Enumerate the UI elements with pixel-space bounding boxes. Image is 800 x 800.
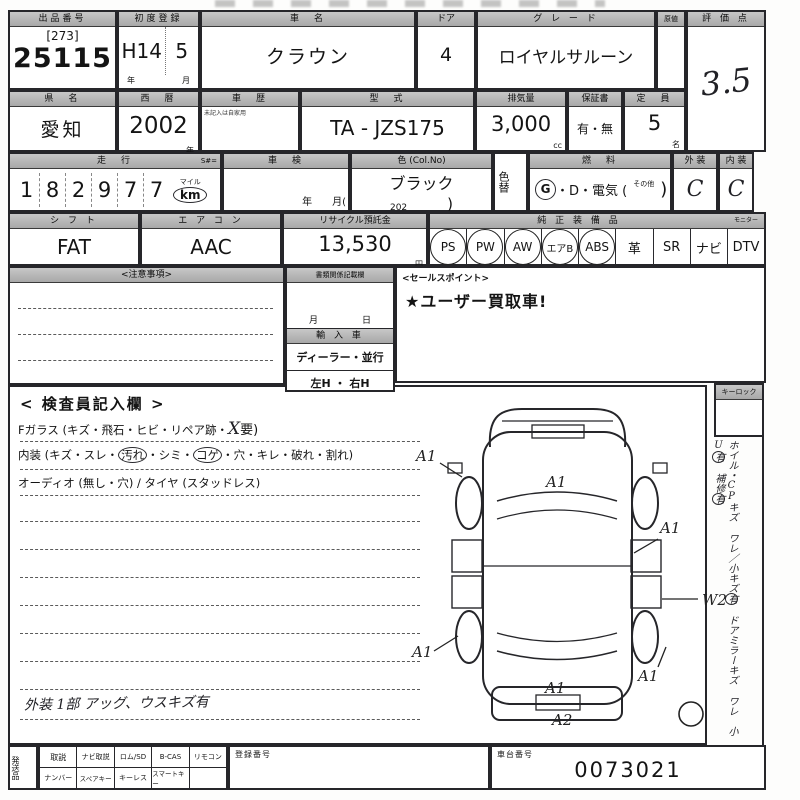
- interior-grade: C: [720, 169, 752, 209]
- ship-navi-manual: ナビ取説: [77, 747, 114, 767]
- keylock-header: キーロック: [716, 385, 762, 400]
- mileage-digit: 8: [40, 173, 66, 207]
- shift-cell: シ フ ト FAT: [8, 212, 140, 266]
- warranty-cell: 保証書 有・無: [567, 90, 623, 152]
- score-value: 3.5: [682, 23, 769, 140]
- car-name-header: 車 名: [202, 12, 414, 27]
- docs-header: 書類関係記載欄: [287, 268, 393, 283]
- mileage-header: 走 行: [97, 156, 133, 166]
- import-handle: 左H ・ 右H: [287, 371, 393, 395]
- first-reg-era: H14: [119, 27, 166, 75]
- interior-cell: 内 装 C: [718, 152, 754, 212]
- score-cell: 評 価 点 3.5: [686, 10, 766, 152]
- damage-label: A1: [414, 447, 436, 465]
- rear-window: [497, 633, 617, 642]
- sidebar-right-border: [762, 383, 764, 745]
- ship-keyless: キーレス: [115, 768, 152, 788]
- equip-pw: PW: [467, 229, 504, 265]
- shaken-header: 車 検: [224, 154, 348, 169]
- lot-header: 出品番号: [10, 12, 115, 27]
- door-cell: ドア 4: [416, 10, 476, 90]
- damage-label: A1: [636, 667, 658, 685]
- ship-rom-sd: ロム/SD: [115, 747, 152, 767]
- year-cell: 西 暦 2002 年: [117, 90, 200, 152]
- pref-cell: 県 名 愛知: [8, 90, 117, 152]
- notes-box: <注意事項>: [8, 266, 285, 385]
- color-change-label: 色替: [495, 154, 511, 210]
- docs-day: 日: [362, 313, 371, 326]
- displacement-value: 3,000: [477, 107, 565, 141]
- aircon-value: AAC: [142, 229, 280, 265]
- color-header: 色 (Col.No): [352, 154, 491, 169]
- displacement-header: 排気量: [477, 92, 565, 107]
- inspector-hand-note: 外装 1部 アッグ、ウスキズ有: [24, 691, 209, 714]
- damage-label: A2: [550, 711, 572, 729]
- first-reg-header: 初度登録: [119, 12, 198, 27]
- fuel-rest: ・D・電気 (: [556, 180, 627, 199]
- shaken-units: 年 月(: [302, 193, 346, 208]
- lot-bracket: [273]: [10, 29, 115, 43]
- wheel-rear-left: [456, 611, 482, 663]
- car-name-value: クラウン: [202, 27, 414, 83]
- interior-header: 内 装: [720, 154, 752, 169]
- mileage-unit-small: マイル: [173, 177, 207, 187]
- capacity-unit: 名: [625, 139, 684, 150]
- recycle-cell: リサイクル預託金 13,530 円: [282, 212, 428, 266]
- grade-value: ロイヤルサルーン: [478, 27, 654, 83]
- docs-month: 月: [309, 313, 318, 326]
- aircon-cell: エ ア コ ン AAC: [140, 212, 282, 266]
- equip-ps: PS: [430, 229, 467, 265]
- door-left-front: [452, 540, 482, 572]
- color-value: ブラック: [352, 169, 491, 195]
- damage-label: A1: [658, 519, 680, 537]
- warranty-value: 有・無: [569, 107, 621, 149]
- color-close-paren: ): [447, 195, 453, 213]
- equip-leather: 革: [616, 229, 653, 265]
- history-note: 未記入は自家用: [202, 107, 298, 118]
- shift-header: シ フ ト: [10, 214, 138, 229]
- exterior-cell: 外 装 C: [672, 152, 718, 212]
- recycle-value: 13,530: [284, 229, 426, 259]
- keylock-box: キーロック: [714, 383, 764, 437]
- equip-sr: SR: [654, 229, 691, 265]
- equip-abs: ABS: [579, 229, 616, 265]
- ship-smart-key: スマートキー: [152, 768, 189, 788]
- mirror-right: [653, 463, 667, 473]
- lot-cell: 出品番号 [273] 25115: [8, 10, 117, 90]
- color-change-cell: 色替: [493, 152, 528, 212]
- windshield: [497, 492, 617, 501]
- color-cell: 色 (Col.No) ブラック 202 ): [350, 152, 493, 212]
- shipping-label: 発送品: [10, 747, 21, 788]
- ship-remote: リモコン: [190, 747, 226, 767]
- lot-number: 25115: [10, 43, 115, 74]
- damage-label: A1: [543, 679, 565, 697]
- auction-sheet: 出品番号 [273] 25115 初度登録 H14 5 年 月 車 名 クラウン…: [0, 0, 800, 800]
- model-value: TA - JZS175: [302, 107, 473, 149]
- model-cell: 型 式 TA - JZS175: [300, 90, 475, 152]
- door-right-rear: [631, 576, 661, 608]
- reg-number-box: 登録番号: [228, 745, 490, 790]
- cut-off-title-smudge: [215, 0, 605, 7]
- inspector-line-fglass: Fガラス (キズ・飛石・ヒビ・リペア跡・X要): [18, 419, 258, 439]
- year-header: 西 暦: [119, 92, 198, 107]
- door-right-front: [631, 540, 661, 572]
- equip-dtv: DTV: [728, 229, 764, 265]
- fuel-cell: 燃 料 G ・D・電気 ( その他 ): [528, 152, 672, 212]
- capacity-value: 5: [625, 107, 684, 139]
- equipment-header: 純 正 装 備 品: [430, 214, 728, 229]
- shipping-table: 取説 ナビ取説 ロム/SD B-CAS リモコン ナンバー スペアキー キーレス…: [38, 745, 228, 790]
- ship-bcas: B-CAS: [152, 747, 189, 767]
- mileage-header-right: S#=: [201, 154, 217, 168]
- wheel-rear-right: [632, 611, 658, 663]
- circled-burn: コゲ: [193, 447, 222, 463]
- fuel-gas-circled: G: [535, 179, 556, 200]
- displacement-unit: cc: [477, 141, 565, 150]
- hand-drawn-circle: [679, 702, 703, 726]
- aux-column: 原値: [656, 10, 686, 90]
- aircon-header: エ ア コ ン: [142, 214, 280, 229]
- history-cell: 車 歴 未記入は自家用: [200, 90, 300, 152]
- exterior-header: 外 装: [674, 154, 716, 169]
- door-header: ドア: [418, 12, 474, 27]
- circled-yes: 有: [725, 593, 738, 605]
- first-reg-month: 5: [166, 39, 199, 63]
- first-reg-cell: 初度登録 H14 5 年 月: [117, 10, 200, 90]
- import-header: 輸 入 車: [287, 329, 393, 344]
- chassis-number-value: 0073021: [492, 758, 764, 782]
- wheel-front-right: [632, 477, 658, 529]
- grade-cell: グ レ ー ド ロイヤルサルーン: [476, 10, 656, 90]
- shaken-cell: 車 検 年 月(: [222, 152, 350, 212]
- pref-header: 県 名: [10, 92, 115, 107]
- door-value: 4: [418, 27, 474, 83]
- inspector-line-audio: オーディオ (無し・穴) / タイヤ (スタッドレス): [18, 475, 260, 491]
- docs-column: 書類関係記載欄 月 日 輸 入 車 ディーラー・並行 左H ・ 右H: [285, 266, 395, 392]
- door-left-rear: [452, 576, 482, 608]
- ship-number-plate: ナンバー: [40, 768, 77, 788]
- equip-airbag: エアB: [542, 229, 579, 265]
- car-name-cell: 車 名 クラウン: [200, 10, 416, 90]
- mileage-digit: 9: [92, 173, 118, 207]
- pref-value: 愛知: [10, 107, 115, 149]
- recycle-header: リサイクル預託金: [284, 214, 426, 229]
- sidebar-hand-note: ホイル・CPキズ ワレ／小キズ有 ドアミラーキズ ワレ 小U有 補修有: [712, 440, 738, 742]
- notes-header: <注意事項>: [10, 268, 283, 283]
- mirror-left: [448, 463, 462, 473]
- capacity-cell: 定 員 5 名: [623, 90, 686, 152]
- fuel-other: その他: [633, 179, 654, 189]
- ship-spare-key: スペアキー: [77, 768, 114, 788]
- shift-value: FAT: [10, 229, 138, 265]
- equipment-cell: 純 正 装 備 品 モニター PS PW AW エアB ABS 革 SR ナビ …: [428, 212, 766, 266]
- damage-label: A1: [544, 473, 566, 491]
- fuel-close-paren: ): [660, 179, 667, 200]
- equipment-header-right: モニター: [728, 214, 764, 229]
- front-bumper: [490, 409, 625, 447]
- capacity-header: 定 員: [625, 92, 684, 107]
- ship-manual: 取説: [40, 747, 77, 767]
- mileage-digit: 7: [118, 173, 144, 207]
- equip-aw: AW: [505, 229, 542, 265]
- car-damage-diagram: A1 A1 A1 W2 A1 A1 A1 A2: [410, 395, 740, 745]
- mileage-digit: 2: [66, 173, 92, 207]
- first-reg-unit-month: 月: [182, 75, 190, 86]
- reg-number-header: 登録番号: [230, 747, 488, 760]
- aux-header: 原値: [658, 12, 684, 27]
- sales-point-header: <セールスポイント>: [397, 268, 764, 284]
- fuel-header: 燃 料: [530, 154, 670, 169]
- model-header: 型 式: [302, 92, 473, 107]
- circled-dirt: 汚れ: [118, 447, 147, 463]
- first-reg-unit-year: 年: [127, 75, 135, 86]
- equip-navi: ナビ: [691, 229, 728, 265]
- exterior-grade: C: [674, 169, 716, 209]
- wheel-front-left: [456, 477, 482, 529]
- grade-header: グ レ ー ド: [478, 12, 654, 27]
- chassis-number-box: 車台番号 0073021: [490, 745, 766, 790]
- import-dealer: ディーラー・並行: [287, 344, 393, 371]
- year-value: 2002: [119, 107, 198, 145]
- displacement-cell: 排気量 3,000 cc: [475, 90, 567, 152]
- mileage-km-stamp: km: [173, 187, 207, 203]
- sales-point-value: ★ユーザー買取車!: [397, 284, 764, 312]
- inspector-title: < 検査員記入欄 >: [20, 393, 166, 414]
- circled-yes: 有: [712, 451, 725, 463]
- circled-yes: 有: [712, 493, 725, 505]
- history-header: 車 歴: [202, 92, 298, 107]
- mileage-cell: 走 行 S#= 1 8 2 9 7 7 マイル km: [8, 152, 222, 212]
- warranty-header: 保証書: [569, 92, 621, 107]
- ship-empty: [190, 768, 226, 788]
- damage-label: A1: [410, 643, 432, 661]
- fglass-hand-x: X: [228, 419, 240, 439]
- mileage-digit: 7: [144, 173, 169, 207]
- inspector-line-interior: 内装 (キズ・スレ・汚れ・シミ・コゲ・穴・キレ・破れ・割れ): [18, 447, 353, 463]
- mileage-digit: 1: [14, 173, 40, 207]
- sales-point-box: <セールスポイント> ★ユーザー買取車!: [395, 266, 766, 383]
- shipping-label-cell: 発送品: [8, 745, 38, 790]
